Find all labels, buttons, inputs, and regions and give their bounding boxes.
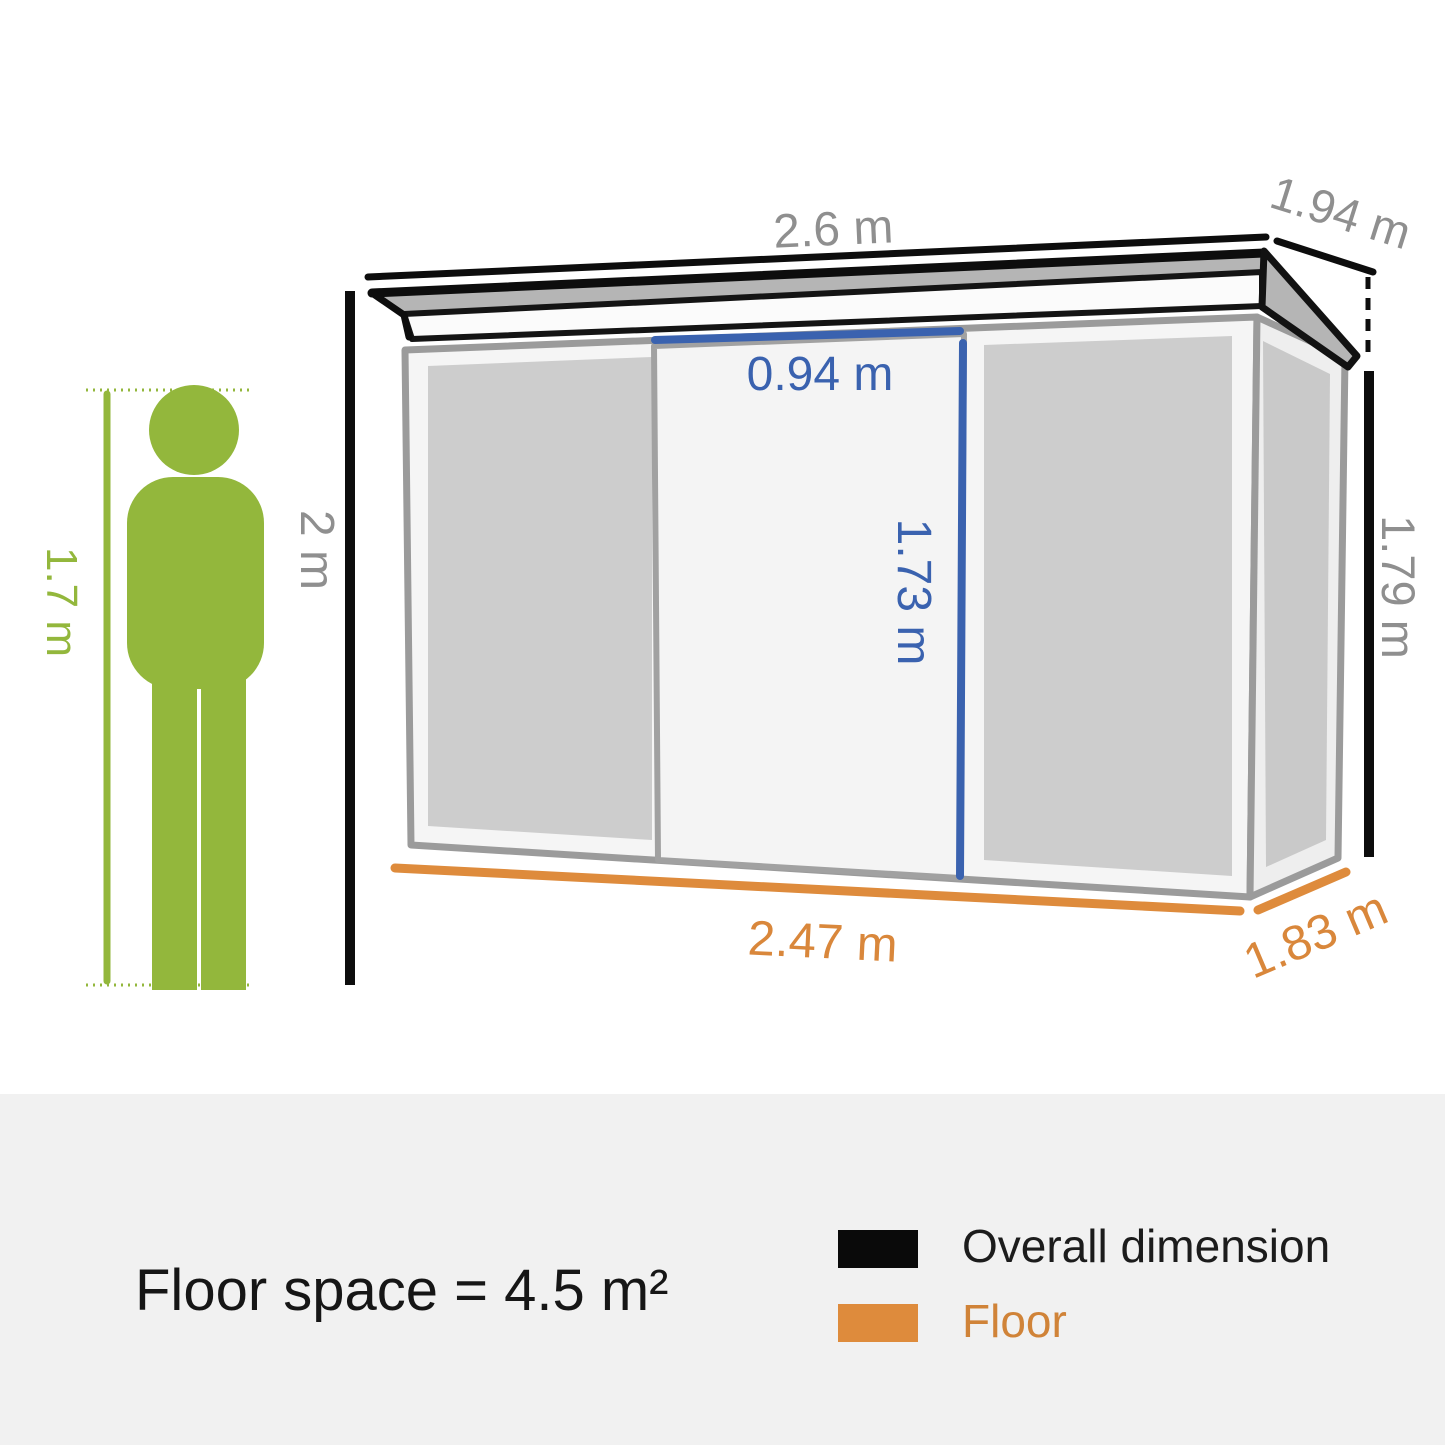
floor-space-label: Floor space = 4.5 m²	[135, 1258, 669, 1323]
diagram-svg: 1.7 m 2.6 m 1.94 m 2 m 1.79 m 0.94 m 1.7…	[0, 0, 1445, 1445]
roof-depth-line	[1277, 241, 1373, 272]
shed-right-panel	[984, 336, 1232, 876]
door-height-line	[960, 343, 963, 876]
shed-side-panel	[1263, 341, 1330, 867]
shed-height-label: 2 m	[290, 510, 343, 590]
right-wall-height-label: 1.79 m	[1372, 515, 1425, 659]
shed-left-panel	[428, 357, 652, 840]
floor-width-label: 2.47 m	[747, 911, 899, 972]
person-icon	[127, 385, 264, 990]
floor-depth-label: 1.83 m	[1236, 881, 1395, 989]
person-head	[149, 385, 239, 475]
door-height-label: 1.73 m	[887, 519, 940, 666]
door-width-label: 0.94 m	[747, 348, 894, 401]
legend-overall-label: Overall dimension	[962, 1220, 1330, 1272]
legend-overall-swatch	[838, 1230, 918, 1268]
person-height-label: 1.7 m	[37, 547, 86, 657]
legend-floor-swatch	[838, 1304, 918, 1342]
shed-dimension-diagram: 1.7 m 2.6 m 1.94 m 2 m 1.79 m 0.94 m 1.7…	[0, 0, 1445, 1445]
legend-floor-label: Floor	[962, 1295, 1067, 1347]
person-left-leg	[152, 640, 197, 990]
roof-width-label: 2.6 m	[772, 200, 894, 258]
person-right-leg	[201, 640, 246, 990]
